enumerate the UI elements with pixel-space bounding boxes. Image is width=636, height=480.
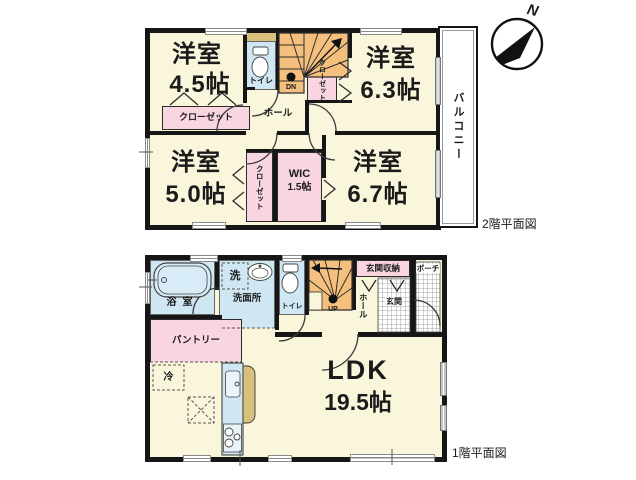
wic-size: 1.5帖 [277, 182, 322, 193]
room63-size: 6.3帖 [336, 78, 446, 104]
wall [335, 131, 436, 135]
room50-name: 洋室 [146, 150, 246, 176]
room67-size: 6.7帖 [325, 182, 431, 208]
porch-label: ポーチ [414, 265, 442, 273]
toilet2-label: トイレ [246, 77, 276, 86]
room45-size: 4.5帖 [145, 72, 255, 98]
balcony-label: バルコニー [438, 26, 478, 228]
window [282, 255, 302, 262]
closet-center-label: クローゼット [307, 56, 337, 103]
entry-storage-label: 玄関収納 [356, 260, 410, 277]
wall [276, 33, 279, 90]
wall [275, 332, 322, 337]
washroom-label: 洗面所 [219, 294, 275, 304]
window [192, 222, 226, 229]
fridge-label: 冷 [153, 365, 184, 390]
room63-name: 洋室 [341, 46, 441, 72]
wall [150, 131, 246, 135]
wall [322, 135, 326, 178]
wall [275, 260, 279, 330]
wall [215, 260, 219, 290]
hall1-label: ホール [354, 281, 372, 331]
dn-label: DN [280, 84, 302, 92]
compass-north-label: N [525, 2, 540, 21]
floor-plan-page: { "compass": {"north": "N"}, "floor2": {… [0, 0, 636, 480]
window [190, 255, 218, 262]
window [205, 28, 247, 35]
floor1-caption: 1階平面図 [452, 444, 507, 461]
wall [150, 315, 222, 319]
window [268, 455, 292, 462]
bath-label: 浴室 [150, 297, 215, 308]
toilet2-shelf [246, 33, 276, 41]
closet-room45-label: クローゼット [162, 106, 250, 130]
wall [277, 131, 309, 135]
wic-name: WIC [277, 168, 322, 180]
entry-label: 玄関 [380, 298, 408, 307]
wall [305, 100, 309, 135]
washer-label: 洗 [222, 263, 248, 289]
room45-name: 洋室 [147, 42, 247, 68]
room50-size: 5.0帖 [143, 182, 249, 208]
window [440, 362, 447, 396]
room67-name: 洋室 [328, 150, 428, 176]
window [183, 455, 211, 462]
ldk-size: 19.5帖 [278, 390, 438, 415]
hall2-label: ホール [258, 109, 298, 119]
compass-icon [492, 19, 542, 69]
window [345, 222, 381, 229]
ldk-name: LDK [288, 356, 428, 386]
window [440, 405, 447, 431]
up-label: UP [322, 306, 344, 314]
toilet1-label: トイレ [277, 303, 307, 311]
closet-room50-label: クローゼット [246, 152, 273, 222]
pantry-label: パントリー [150, 336, 242, 346]
wall [358, 332, 447, 337]
sliding-window [350, 454, 435, 462]
window [360, 28, 402, 35]
floor2-caption: 2階平面図 [482, 215, 537, 232]
